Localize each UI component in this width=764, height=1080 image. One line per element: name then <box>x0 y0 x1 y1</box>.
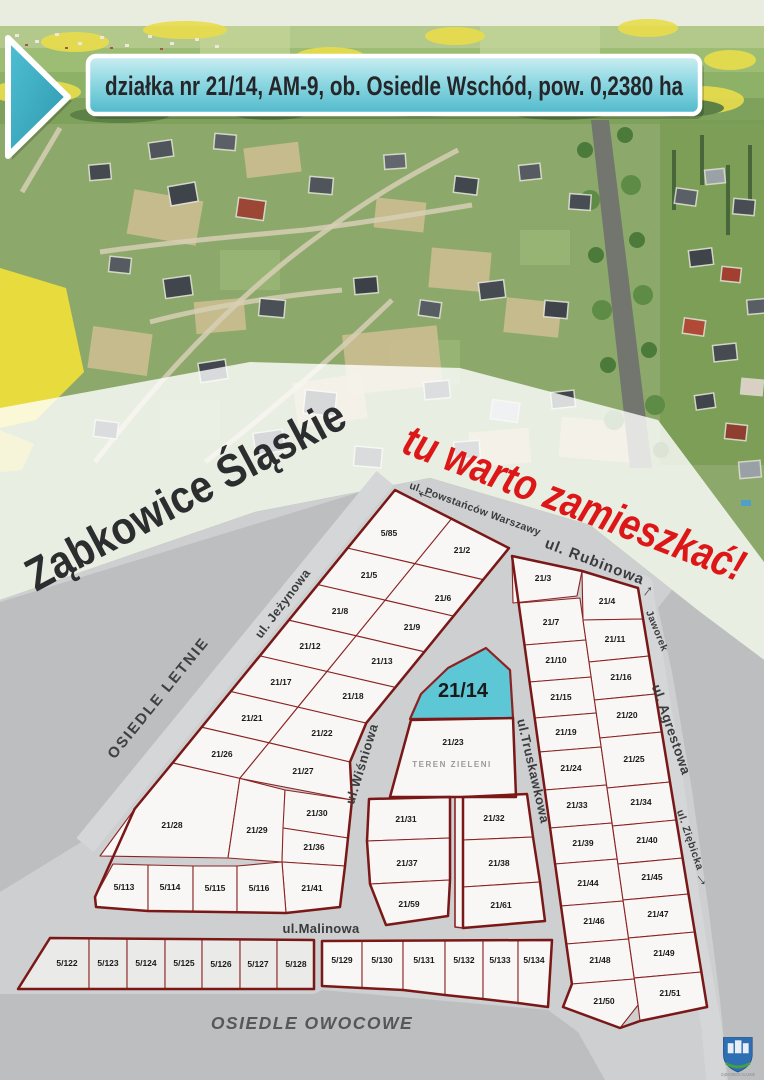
plot-label-21-31: 21/31 <box>395 814 417 824</box>
plot-label-21-3: 21/3 <box>535 573 552 583</box>
plot-label-21-37: 21/37 <box>396 858 418 868</box>
plot-label-21-5: 21/5 <box>361 570 378 580</box>
plot-label-21-32: 21/32 <box>483 813 505 823</box>
plot-label-21-21: 21/21 <box>241 713 263 723</box>
plot-label-21-46: 21/46 <box>583 916 605 926</box>
plot-5-132 <box>445 941 483 999</box>
plot-label-21-18: 21/18 <box>342 691 364 701</box>
plot-label-21-24: 21/24 <box>560 763 582 773</box>
plot-5-133 <box>483 940 518 1003</box>
plot-label-5-123: 5/123 <box>97 958 119 968</box>
plot-label-5-124: 5/124 <box>135 958 157 968</box>
plot-label-21-41: 21/41 <box>301 883 323 893</box>
plot-label-21-40: 21/40 <box>636 835 658 845</box>
plot-label-5-133: 5/133 <box>489 955 511 965</box>
plot-label-5-114: 5/114 <box>160 882 181 892</box>
plot-label-21-15: 21/15 <box>550 692 572 702</box>
plot-label-5-134: 5/134 <box>523 955 545 965</box>
plot-label-21-7: 21/7 <box>543 617 560 627</box>
plot-label-5-116: 5/116 <box>249 883 270 893</box>
poster: 5/8521/221/521/621/821/921/1221/1321/172… <box>0 0 764 1080</box>
plot-label-21-39: 21/39 <box>572 838 594 848</box>
street-label-ul-malinowa: ul.Malinowa <box>283 921 360 936</box>
plot-label-21-17: 21/17 <box>270 677 292 687</box>
plot-label-21-48: 21/48 <box>589 955 611 965</box>
plot-label-21-29: 21/29 <box>246 825 268 835</box>
plot-label-21-38: 21/38 <box>488 858 510 868</box>
plot-label-5-125: 5/125 <box>173 958 195 968</box>
plot-label-5-115: 5/115 <box>205 883 226 893</box>
plot-label-21-8: 21/8 <box>332 606 349 616</box>
plot-label-5-126: 5/126 <box>210 959 232 969</box>
plot-5-134 <box>518 940 552 1007</box>
plot-label-21-14: 21/14 <box>438 680 489 702</box>
plot-label-21-51: 21/51 <box>659 988 681 998</box>
plot-label-21-47: 21/47 <box>647 909 669 919</box>
logo-caption: ZĄBKOWICE ŚLĄSKIE <box>721 1072 755 1077</box>
plot-label-21-26: 21/26 <box>211 749 233 759</box>
plot-label-5-85: 5/85 <box>381 528 398 538</box>
plot-label-21-20: 21/20 <box>616 710 638 720</box>
plot-5-131 <box>403 941 445 995</box>
plot-label-21-30: 21/30 <box>306 808 328 818</box>
plot-label-21-12: 21/12 <box>299 641 321 651</box>
plot-label-5-122: 5/122 <box>56 958 78 968</box>
plot-label-21-61: 21/61 <box>490 900 512 910</box>
plot-label-21-9: 21/9 <box>404 622 421 632</box>
plot-label-21-27: 21/27 <box>292 766 314 776</box>
plot-label-21-44: 21/44 <box>577 878 599 888</box>
plot-label-21-11: 21/11 <box>605 634 626 644</box>
plot-label-21-16: 21/16 <box>610 672 632 682</box>
banner-text: działka nr 21/14, AM-9, ob. Osiedle Wsch… <box>105 71 683 101</box>
plot-label-21-25: 21/25 <box>623 754 645 764</box>
plot-label-21-6: 21/6 <box>435 593 452 603</box>
plot-label-5-130: 5/130 <box>371 955 393 965</box>
plot-label-21-33: 21/33 <box>566 800 588 810</box>
plot-label-5-129: 5/129 <box>331 955 353 965</box>
plot-label-21-50: 21/50 <box>593 996 615 1006</box>
plot-label-21-23: 21/23 <box>442 737 464 747</box>
plot-label-21-36: 21/36 <box>303 842 325 852</box>
plot-label-5-128: 5/128 <box>285 959 307 969</box>
plot-label-21-59: 21/59 <box>398 899 420 909</box>
plot-label-21-2: 21/2 <box>454 545 471 555</box>
area-label-osiedle-owocowe: OSIEDLE OWOCOWE <box>211 1013 413 1033</box>
plot-label-21-10: 21/10 <box>545 655 567 665</box>
coat-of-arms: ZĄBKOWICE ŚLĄSKIE <box>721 1037 755 1077</box>
plot-label-5-127: 5/127 <box>247 959 269 969</box>
plot-label-21-49: 21/49 <box>653 948 675 958</box>
plot-label-5-132: 5/132 <box>453 955 475 965</box>
plot-label-21-28: 21/28 <box>161 820 183 830</box>
plot-label-5-131: 5/131 <box>413 955 435 965</box>
plot-label-21-34: 21/34 <box>630 797 652 807</box>
area-label-teren-zieleni: TEREN ZIELENI <box>412 760 492 769</box>
plot-label-21-45: 21/45 <box>641 872 663 882</box>
plot-label-21-4: 21/4 <box>599 596 616 606</box>
plot-label-21-13: 21/13 <box>371 656 393 666</box>
plot-label-21-22: 21/22 <box>311 728 333 738</box>
plot-5-130 <box>362 941 403 990</box>
plot-label-21-19: 21/19 <box>555 727 577 737</box>
plot-label-5-113: 5/113 <box>114 882 135 892</box>
